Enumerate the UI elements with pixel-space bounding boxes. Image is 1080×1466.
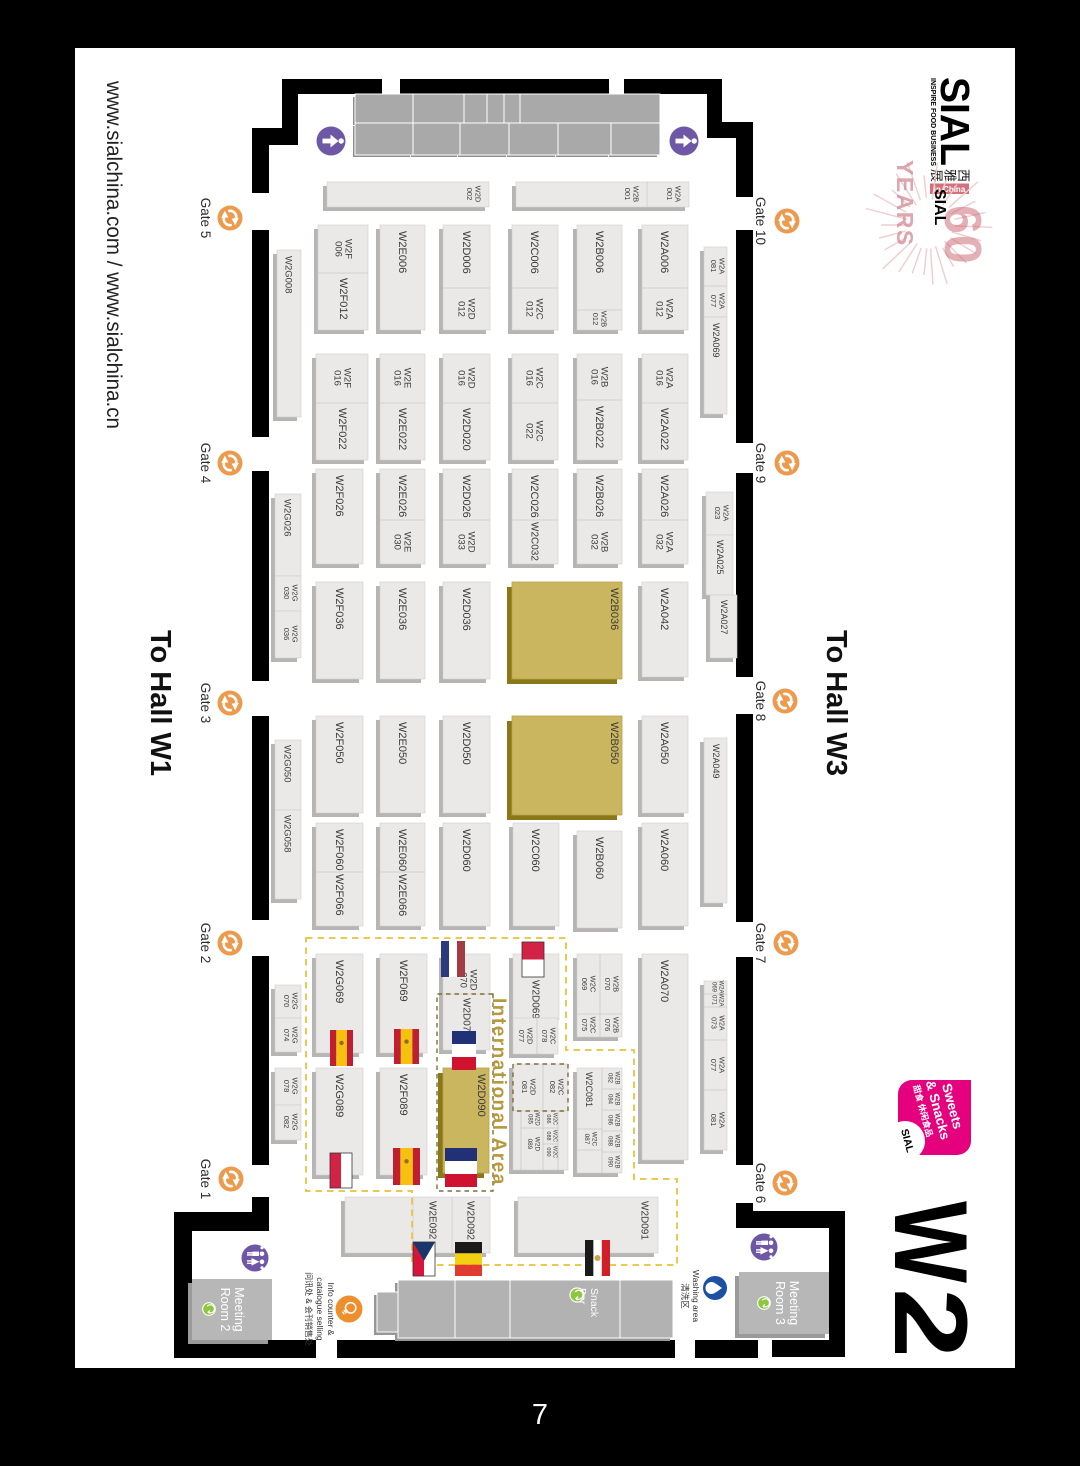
svg-text:Gate 4: Gate 4: [198, 443, 213, 484]
svg-text:W2B: W2B: [614, 1155, 620, 1168]
svg-text:W2G026: W2G026: [282, 499, 293, 537]
svg-text:W2G069: W2G069: [333, 960, 345, 1003]
svg-text:W2E006: W2E006: [396, 231, 408, 273]
svg-text:W2E060: W2E060: [396, 829, 408, 871]
svg-text:W2G008: W2G008: [283, 256, 294, 294]
svg-text:084: 084: [606, 1094, 612, 1105]
svg-text:YEARS: YEARS: [892, 160, 918, 247]
svg-text:081: 081: [709, 260, 718, 273]
svg-text:Snack: Snack: [588, 1288, 600, 1318]
svg-text:W2B006: W2B006: [593, 231, 605, 273]
svg-text:Meeting: Meeting: [787, 1281, 801, 1326]
svg-text:016: 016: [523, 370, 534, 386]
svg-text:016: 016: [588, 369, 599, 385]
svg-text:W2F089: W2F089: [397, 1074, 409, 1116]
svg-text:W2C006: W2C006: [528, 231, 540, 274]
svg-text:问讯处 & 会刊销售处: 问讯处 & 会刊销售处: [304, 1272, 314, 1346]
svg-text:W2A027: W2A027: [719, 600, 729, 635]
svg-text:2: 2: [872, 1288, 988, 1358]
svg-text:082: 082: [606, 1073, 612, 1084]
svg-text:016: 016: [653, 370, 664, 386]
svg-text:077: 077: [709, 295, 718, 308]
svg-text:012: 012: [653, 301, 664, 317]
svg-text:catalogue selling: catalogue selling: [315, 1277, 325, 1341]
svg-text:023: 023: [713, 507, 722, 520]
svg-text:Washing area: Washing area: [691, 1270, 701, 1322]
svg-text:077: 077: [709, 1059, 718, 1072]
svg-text:Gate 1: Gate 1: [198, 1159, 213, 1200]
svg-text:075: 075: [580, 1019, 589, 1032]
svg-text:071: 071: [710, 995, 716, 1006]
svg-text:W2F012: W2F012: [337, 278, 349, 320]
svg-text:W2E066: W2E066: [396, 874, 408, 916]
svg-text:088: 088: [545, 1131, 551, 1140]
svg-text:078: 078: [540, 1030, 549, 1043]
svg-text:070: 070: [603, 978, 612, 991]
svg-text:W2C: W2C: [552, 1146, 558, 1158]
svg-text:001: 001: [623, 188, 632, 201]
svg-text:085: 085: [526, 1114, 532, 1125]
svg-text:INSPIRE FOOD BUSINESS: INSPIRE FOOD BUSINESS: [929, 78, 938, 166]
svg-text:W2F036: W2F036: [333, 588, 345, 630]
svg-text:W2D036: W2D036: [460, 588, 472, 631]
svg-text:077: 077: [517, 1030, 526, 1043]
svg-text:W2B022: W2B022: [593, 406, 605, 448]
svg-text:W2B050: W2B050: [608, 722, 620, 764]
svg-text:Gate 5: Gate 5: [198, 198, 213, 239]
svg-text:W2A042: W2A042: [658, 588, 670, 630]
svg-text:W: W: [872, 1201, 988, 1284]
svg-text:082: 082: [548, 1081, 557, 1094]
svg-text:032: 032: [653, 534, 664, 550]
svg-text:W2A049: W2A049: [711, 744, 721, 779]
svg-text:W2B: W2B: [614, 1134, 620, 1147]
svg-text:清洗区: 清洗区: [680, 1283, 690, 1309]
svg-text:081: 081: [520, 1081, 529, 1094]
svg-text:W2D091: W2D091: [638, 1201, 649, 1240]
svg-text:070: 070: [282, 995, 291, 1008]
svg-text:International Area: International Area: [488, 998, 509, 1186]
svg-text:W2A050: W2A050: [658, 722, 670, 764]
svg-text:090: 090: [606, 1157, 612, 1168]
svg-text:W2B: W2B: [614, 1071, 620, 1084]
svg-text:W2D020: W2D020: [460, 408, 472, 451]
svg-text:W2F069: W2F069: [397, 960, 409, 1002]
svg-text:W2C032: W2C032: [528, 522, 539, 561]
svg-text:Room 2: Room 2: [218, 1288, 232, 1332]
svg-text:W2G089: W2G089: [333, 1074, 345, 1117]
svg-text:081: 081: [709, 1114, 718, 1127]
svg-text:030: 030: [282, 587, 291, 600]
svg-text:Gate 7: Gate 7: [753, 923, 768, 964]
svg-text:030: 030: [391, 534, 402, 550]
svg-text:012: 012: [523, 301, 534, 317]
svg-text:032: 032: [588, 534, 599, 550]
svg-text:016: 016: [391, 370, 402, 386]
svg-text:W2F026: W2F026: [333, 475, 345, 517]
svg-text:002: 002: [465, 188, 474, 201]
svg-text:W2E022: W2E022: [396, 408, 408, 450]
svg-text:SIAL: SIAL: [931, 189, 948, 226]
svg-text:W2A070: W2A070: [658, 960, 670, 1002]
svg-text:W2C: W2C: [591, 1132, 598, 1147]
svg-text:036: 036: [282, 628, 291, 641]
svg-text:Gate 9: Gate 9: [753, 443, 768, 484]
svg-text:W2D: W2D: [534, 1137, 541, 1152]
svg-text:W2D050: W2D050: [460, 722, 472, 765]
svg-text:012: 012: [591, 313, 600, 326]
svg-text:W2B060: W2B060: [593, 837, 605, 879]
svg-text:W2E036: W2E036: [396, 588, 408, 630]
svg-text:086: 086: [545, 1114, 551, 1123]
svg-text:To Hall W3: To Hall W3: [820, 630, 852, 776]
svg-text:086: 086: [606, 1115, 612, 1126]
svg-text:Gate 2: Gate 2: [198, 923, 213, 964]
svg-text:W2A025: W2A025: [715, 540, 725, 575]
svg-text:W2F022: W2F022: [336, 408, 348, 450]
svg-text:W2B: W2B: [614, 1092, 620, 1105]
svg-text:W2B026: W2B026: [593, 475, 605, 517]
svg-text:W2A026: W2A026: [658, 475, 670, 517]
svg-text:W2C026: W2C026: [528, 475, 540, 518]
svg-text:Meeting: Meeting: [232, 1287, 246, 1332]
svg-text:087: 087: [583, 1134, 590, 1145]
svg-text:W2B036: W2B036: [608, 588, 620, 630]
svg-text:W2G058: W2G058: [282, 815, 293, 853]
svg-text:W2D092: W2D092: [464, 1201, 475, 1240]
svg-text:W2D069: W2D069: [529, 980, 540, 1019]
svg-text:W2A: W2A: [718, 993, 724, 1006]
svg-text:016: 016: [331, 370, 342, 386]
svg-text:W2A: W2A: [718, 1015, 725, 1031]
svg-text:Room 3: Room 3: [773, 1281, 787, 1325]
svg-text:W2E092: W2E092: [426, 1201, 437, 1240]
svg-text:089: 089: [526, 1139, 533, 1150]
svg-text:Info counter &: Info counter &: [326, 1283, 336, 1336]
svg-text:Gate 8: Gate 8: [753, 681, 768, 722]
svg-text:078: 078: [282, 1080, 291, 1093]
svg-text:W2F060: W2F060: [333, 829, 345, 871]
svg-text:W2A022: W2A022: [658, 408, 670, 450]
svg-text:W2B: W2B: [614, 1113, 620, 1126]
svg-text:088: 088: [606, 1136, 612, 1147]
svg-text:W2C081: W2C081: [584, 1072, 594, 1107]
svg-text:W2C: W2C: [552, 1130, 558, 1142]
svg-text:W2D026: W2D026: [460, 475, 472, 518]
svg-text:W2E050: W2E050: [396, 722, 408, 764]
svg-text:016: 016: [455, 370, 466, 386]
svg-text:W2F050: W2F050: [333, 722, 345, 764]
svg-text:074: 074: [282, 1029, 291, 1042]
svg-text:Gate 6: Gate 6: [753, 1163, 768, 1204]
svg-text:022: 022: [523, 423, 534, 439]
svg-text:069: 069: [580, 978, 589, 991]
svg-text:W2A: W2A: [718, 980, 724, 993]
svg-text:W2G050: W2G050: [282, 745, 293, 783]
svg-text:082: 082: [282, 1116, 291, 1129]
svg-text:W2F066: W2F066: [333, 874, 345, 916]
svg-text:W2D090: W2D090: [475, 1074, 487, 1117]
svg-text:090: 090: [545, 1147, 551, 1156]
svg-text:W2D006: W2D006: [460, 231, 472, 274]
svg-text:www.sialchina.com / www.sialch: www.sialchina.com / www.sialchina.cn: [102, 80, 126, 429]
svg-text:069: 069: [710, 982, 716, 993]
svg-text:012: 012: [455, 301, 466, 317]
svg-text:W2A060: W2A060: [658, 829, 670, 871]
svg-text:006: 006: [332, 241, 343, 257]
svg-text:W2D: W2D: [534, 1112, 540, 1126]
svg-text:Gate 3: Gate 3: [198, 683, 213, 724]
svg-text:W2C060: W2C060: [529, 829, 541, 872]
svg-text:033: 033: [455, 534, 466, 550]
svg-text:076: 076: [603, 1019, 612, 1032]
svg-text:To Hall W1: To Hall W1: [144, 630, 176, 776]
svg-text:W2E026: W2E026: [396, 475, 408, 517]
svg-text:W2A006: W2A006: [658, 231, 670, 273]
svg-text:073: 073: [710, 1017, 717, 1029]
svg-text:W2D060: W2D060: [460, 829, 472, 872]
svg-text:Gate 10: Gate 10: [753, 197, 768, 245]
svg-text:W2C: W2C: [552, 1113, 558, 1125]
svg-text:001: 001: [665, 188, 674, 201]
svg-text:W2A069: W2A069: [711, 323, 721, 358]
